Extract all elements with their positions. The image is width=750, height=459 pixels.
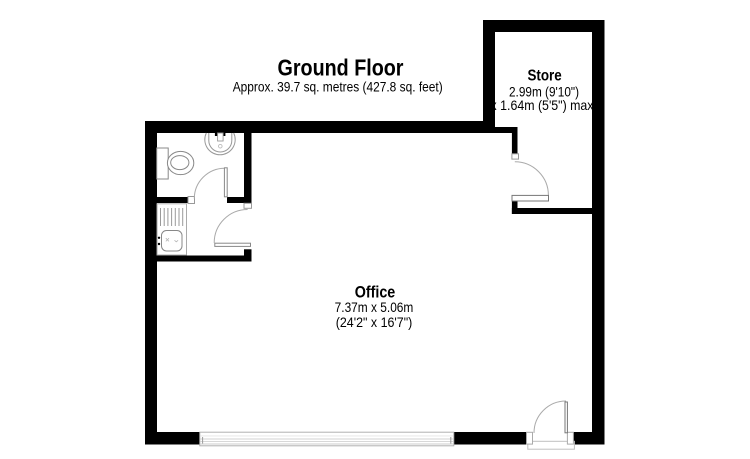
svg-text:2.99m (9'10"): 2.99m (9'10"): [509, 84, 579, 99]
svg-text:(24'2" x 16'7"): (24'2" x 16'7"): [336, 315, 413, 330]
svg-text:7.37m x 5.06m: 7.37m x 5.06m: [335, 300, 414, 315]
svg-text:Ground Floor: Ground Floor: [278, 54, 404, 80]
svg-text:Approx. 39.7 sq. metres (427.8: Approx. 39.7 sq. metres (427.8 sq. feet): [233, 80, 443, 95]
svg-text:Store: Store: [527, 68, 561, 85]
svg-text:x 1.64m (5'5") max: x 1.64m (5'5") max: [491, 98, 594, 113]
svg-text:Office: Office: [355, 282, 396, 301]
